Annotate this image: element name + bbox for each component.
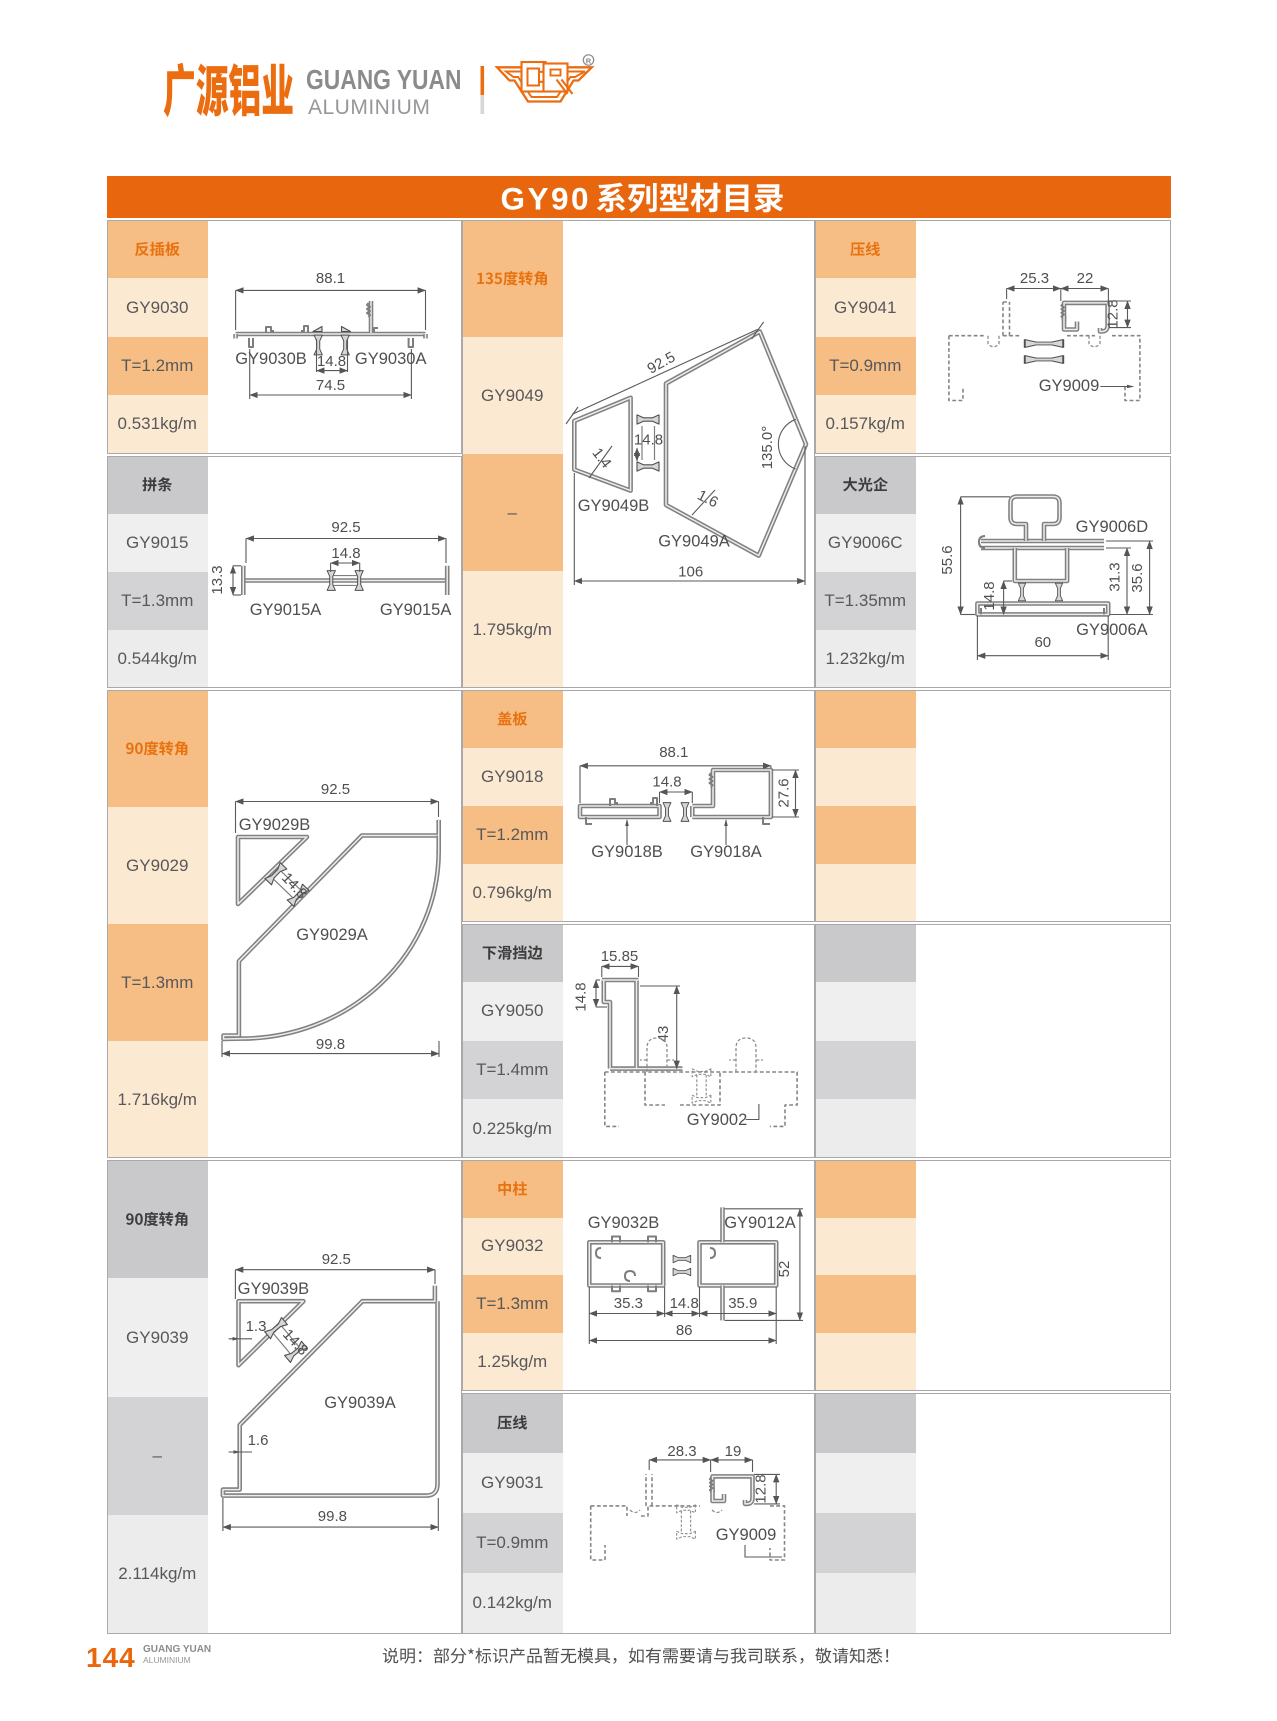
- svg-text:92.5: 92.5: [322, 1251, 351, 1268]
- svg-text:GY9009: GY9009: [716, 1526, 777, 1544]
- svg-text:60: 60: [1034, 634, 1051, 651]
- svg-text:ALUMINIUM: ALUMINIUM: [143, 1655, 191, 1665]
- svg-text:22: 22: [1077, 270, 1094, 287]
- svg-text:1.6: 1.6: [248, 1432, 269, 1449]
- svg-text:GY9029B: GY9029B: [239, 816, 311, 834]
- svg-text:14.8: 14.8: [279, 1326, 311, 1359]
- svg-text:GY9049A: GY9049A: [658, 533, 730, 551]
- svg-text:144: 144: [86, 1642, 136, 1673]
- svg-text:GY9015A: GY9015A: [250, 601, 322, 619]
- svg-text:1.3: 1.3: [246, 1318, 267, 1335]
- svg-text:25.3: 25.3: [1020, 270, 1049, 287]
- svg-text:35.6: 35.6: [1129, 563, 1146, 592]
- svg-text:GY9030A: GY9030A: [355, 350, 427, 368]
- svg-text:14.8: 14.8: [331, 545, 360, 562]
- svg-text:14.8: 14.8: [652, 774, 681, 791]
- svg-text:99.8: 99.8: [316, 1036, 345, 1053]
- svg-text:14.8: 14.8: [573, 982, 590, 1011]
- svg-text:12.8: 12.8: [1105, 299, 1122, 328]
- svg-text:14.8: 14.8: [278, 869, 310, 902]
- svg-text:28.3: 28.3: [667, 1443, 696, 1460]
- svg-text:1.4: 1.4: [588, 445, 614, 472]
- svg-text:92.5: 92.5: [331, 519, 360, 536]
- svg-text:GY90: GY90: [501, 181, 589, 217]
- svg-text:86: 86: [676, 1322, 693, 1339]
- svg-text:52: 52: [776, 1261, 793, 1278]
- svg-text:106: 106: [678, 564, 703, 581]
- svg-text:R: R: [586, 57, 592, 66]
- svg-text:GY9006D: GY9006D: [1076, 518, 1149, 536]
- svg-text:ALUMINIUM: ALUMINIUM: [308, 96, 430, 119]
- svg-text:GUANG YUAN: GUANG YUAN: [143, 1644, 211, 1655]
- svg-text:74.5: 74.5: [316, 377, 345, 394]
- svg-text:19: 19: [725, 1443, 742, 1460]
- svg-text:14.8: 14.8: [670, 1295, 699, 1312]
- svg-text:GY9039A: GY9039A: [324, 1394, 396, 1412]
- svg-text:GY9029A: GY9029A: [296, 926, 368, 944]
- svg-text:35.9: 35.9: [728, 1295, 757, 1312]
- svg-text:35.3: 35.3: [614, 1295, 643, 1312]
- svg-text:14.8: 14.8: [634, 432, 663, 449]
- svg-text:31.3: 31.3: [1106, 562, 1123, 591]
- svg-text:GY9032B: GY9032B: [588, 1214, 660, 1232]
- svg-text:GY9018B: GY9018B: [591, 843, 663, 861]
- svg-text:GY9006A: GY9006A: [1076, 621, 1148, 639]
- svg-text:99.8: 99.8: [318, 1508, 347, 1525]
- svg-text:55.6: 55.6: [939, 545, 956, 574]
- svg-text:88.1: 88.1: [659, 744, 688, 761]
- svg-text:GY9015A: GY9015A: [380, 601, 452, 619]
- svg-text:13.3: 13.3: [209, 565, 226, 594]
- svg-text:GUANG YUAN: GUANG YUAN: [306, 65, 461, 96]
- svg-text:GY9009: GY9009: [1039, 377, 1100, 395]
- svg-text:14.8: 14.8: [317, 353, 346, 370]
- svg-text:GY9049B: GY9049B: [578, 497, 650, 515]
- svg-text:14.8: 14.8: [981, 581, 998, 610]
- svg-text:12.8: 12.8: [753, 1474, 770, 1503]
- svg-text:GY9030B: GY9030B: [235, 350, 307, 368]
- svg-text:88.1: 88.1: [316, 270, 345, 287]
- svg-text:135.0°: 135.0°: [759, 426, 776, 470]
- svg-text:27.6: 27.6: [776, 778, 793, 807]
- svg-text:GY9012A: GY9012A: [724, 1214, 796, 1232]
- svg-text:GY9002: GY9002: [687, 1111, 748, 1129]
- svg-text:GY9039B: GY9039B: [238, 1280, 310, 1298]
- svg-text:92.5: 92.5: [321, 781, 350, 798]
- svg-text:15.85: 15.85: [601, 948, 639, 965]
- svg-text:GY9018A: GY9018A: [690, 843, 762, 861]
